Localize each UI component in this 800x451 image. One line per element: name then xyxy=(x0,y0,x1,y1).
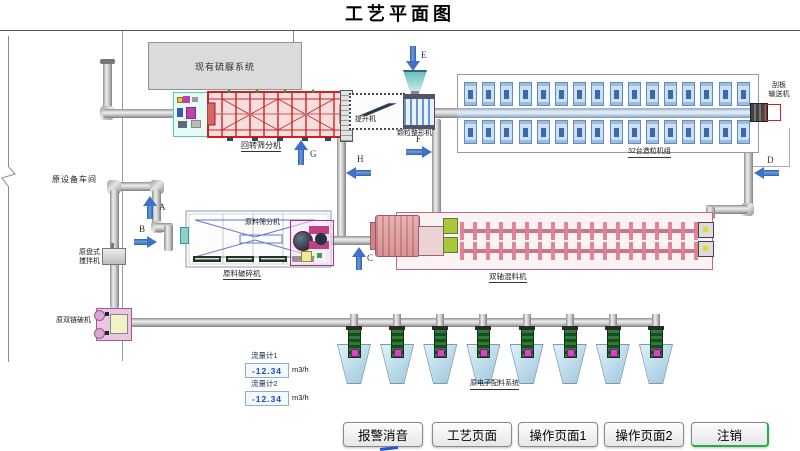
granulator-unit-top xyxy=(464,82,477,106)
granulator-core xyxy=(559,90,564,99)
granulator-unit-top xyxy=(482,82,495,106)
hopper-valve-dot xyxy=(394,349,402,357)
crusher-head-sensor xyxy=(301,251,312,262)
granulator-core xyxy=(541,90,546,99)
granulator-core xyxy=(523,128,528,137)
mixer-shaft-top xyxy=(460,222,698,240)
batching-hopper xyxy=(553,328,587,392)
granulator-core xyxy=(704,128,709,137)
granulator-group-label: 32台造粒机组 xyxy=(628,147,671,158)
granulator-core xyxy=(559,128,564,137)
process-page-button[interactable]: 工艺页面 xyxy=(432,422,512,447)
flow-arrow-g-icon xyxy=(294,140,308,165)
granulator-unit-bottom xyxy=(719,120,732,144)
scraper-conveyor-label-line2: 输送机 xyxy=(760,90,798,99)
operation-page-2-button[interactable]: 操作页面2 xyxy=(604,422,684,447)
batching-hopper xyxy=(423,328,457,392)
granulator-column xyxy=(591,82,604,144)
pipe-segment xyxy=(103,62,112,112)
granulator-unit-bottom xyxy=(646,120,659,144)
granulator-core xyxy=(486,90,491,99)
hopper-valve-dot xyxy=(567,349,575,357)
granulator-column xyxy=(464,82,477,144)
granulator-column xyxy=(482,82,495,144)
granulator-column xyxy=(500,82,513,144)
hopper-valve-dot xyxy=(437,349,445,357)
flow-arrow-f-label: F xyxy=(416,134,421,144)
hopper-cap xyxy=(605,326,621,330)
flow-meter-2-value[interactable]: -12.34 xyxy=(245,391,289,406)
crusher-inlet-stub xyxy=(180,227,189,244)
granulator-column xyxy=(555,82,568,144)
page-title: 工艺平面图 xyxy=(0,0,800,26)
granulator-core xyxy=(632,128,637,137)
pump-part xyxy=(191,120,201,128)
disc-mixer-label-line2: 搅拌机 xyxy=(76,258,100,267)
flow-arrow-d-icon xyxy=(754,167,779,179)
crusher-roller xyxy=(94,328,105,339)
flow-arrow-g-label: G xyxy=(310,149,317,159)
crusher-roller xyxy=(94,310,105,321)
hopper-cap xyxy=(648,326,664,330)
granulator-unit-top xyxy=(664,82,677,106)
flow-meter-2-label: 流量计2 xyxy=(251,379,278,388)
pump-unit-box xyxy=(173,92,209,137)
granulator-core xyxy=(577,128,582,137)
hopper-valve-dot xyxy=(610,349,618,357)
mixer-shaft-bottom xyxy=(460,242,698,260)
pump-motor xyxy=(183,96,190,103)
cursor-artifact xyxy=(380,446,398,451)
mixer-motor xyxy=(375,215,420,257)
existing-system-box: 现有硫脲系统 xyxy=(148,42,302,90)
granulator-unit-bottom xyxy=(464,120,477,144)
left-boundary-line-top xyxy=(8,36,9,166)
flow-arrow-b-label: B xyxy=(139,224,145,234)
raw-screen-label: 原料筛分机 xyxy=(245,218,280,227)
granulator-core xyxy=(723,90,728,99)
batching-hopper xyxy=(380,328,414,392)
flow-arrow-c-label: C xyxy=(367,253,373,263)
hopper-cap xyxy=(475,326,491,330)
rotary-screen-label: 回转筛分机 xyxy=(241,141,281,152)
granulator-unit-bottom xyxy=(482,120,495,144)
chain-crusher-label: 原双链破机 xyxy=(56,316,91,325)
mixer-bearing xyxy=(698,241,714,257)
pipe-segment xyxy=(164,225,173,251)
granulator-core xyxy=(468,128,473,137)
hopper-cap xyxy=(562,326,578,330)
batching-hopper xyxy=(639,328,673,392)
granulator-unit-top xyxy=(646,82,659,106)
granulator-unit-top xyxy=(737,82,750,106)
granulator-unit-bottom xyxy=(500,120,513,144)
granulator-core xyxy=(723,128,728,137)
mixer-gear xyxy=(443,218,458,234)
flow-arrow-a-icon xyxy=(143,196,157,219)
flow-arrow-a-label: A xyxy=(159,202,166,212)
batching-hopper xyxy=(596,328,630,392)
granulator-column xyxy=(719,82,732,144)
granulator-core xyxy=(686,90,691,99)
batching-system-label: 原电子配料系统 xyxy=(470,379,519,390)
alarm-mute-button[interactable]: 报警消音 xyxy=(343,422,423,447)
granulator-core xyxy=(668,90,673,99)
disc-mixer-label: 原盘式 搅拌机 xyxy=(76,249,100,266)
granulator-column xyxy=(573,82,586,144)
granulator-core xyxy=(595,90,600,99)
bearing-dot xyxy=(703,246,708,251)
granulator-column xyxy=(519,82,532,144)
bearing-dot xyxy=(703,227,708,232)
granulator-core xyxy=(577,90,582,99)
granulator-core xyxy=(741,90,746,99)
granulator-column xyxy=(646,82,659,144)
granulator-core xyxy=(486,128,491,137)
pump-part xyxy=(178,121,187,128)
granulator-unit-top xyxy=(591,82,604,106)
crusher-bolt xyxy=(105,312,109,316)
granule-shaper-machine xyxy=(403,94,435,130)
granulator-column xyxy=(537,82,550,144)
flow-meter-2-unit: m3/h xyxy=(292,393,309,402)
hopper-cap xyxy=(519,326,535,330)
raw-crusher-label: 原料破碎机 xyxy=(223,269,261,280)
granulator-core xyxy=(686,128,691,137)
granulator-unit-top xyxy=(555,82,568,106)
pump-motor xyxy=(177,108,183,117)
line-break-symbol xyxy=(1,164,19,188)
crusher-bolt xyxy=(105,331,109,335)
granulator-unit-bottom xyxy=(519,120,532,144)
hopper-cap xyxy=(432,326,448,330)
granulator-unit-top xyxy=(610,82,623,106)
crusher-core xyxy=(110,314,128,334)
granulator-column xyxy=(664,82,677,144)
elevator-label: 提升机 xyxy=(355,115,376,124)
mixer-gearbox xyxy=(418,226,444,256)
granulator-core xyxy=(614,90,619,99)
disc-mixer-box xyxy=(102,248,126,265)
logout-button[interactable]: 注销 xyxy=(691,422,769,447)
pump-motor xyxy=(186,107,196,119)
mixer-gear xyxy=(443,237,458,253)
granulator-core xyxy=(614,128,619,137)
granulator-row xyxy=(464,82,750,144)
hopper-valve-dot xyxy=(351,349,359,357)
granule-shaper-label: 颗粒整形机 xyxy=(397,129,432,138)
disc-mixer-label-line1: 原盘式 xyxy=(76,249,100,258)
hopper-cap xyxy=(346,326,362,330)
granulator-unit-top xyxy=(719,82,732,106)
granulator-column xyxy=(628,82,641,144)
hopper-valve-dot xyxy=(480,349,488,357)
crusher-head-hub xyxy=(315,233,327,245)
flow-arrow-c-icon xyxy=(352,247,366,270)
pipe-segment xyxy=(337,136,346,242)
pipe-segment xyxy=(432,119,441,213)
hopper-valve-dot xyxy=(653,349,661,357)
twin-mixer-label: 双轴混料机 xyxy=(489,272,527,283)
flow-arrow-e-icon xyxy=(406,46,420,71)
granulator-core xyxy=(704,90,709,99)
granulator-unit-top xyxy=(682,82,695,106)
granulator-core xyxy=(632,90,637,99)
rotary-screen-machine xyxy=(207,88,347,142)
mixer-bearing xyxy=(698,222,714,238)
granulator-core xyxy=(650,128,655,137)
granulator-unit-top xyxy=(700,82,713,106)
flow-arrow-e-label: E xyxy=(421,50,427,60)
title-divider xyxy=(0,30,800,31)
flow-arrow-d-label: D xyxy=(767,155,774,165)
crusher-head-frame xyxy=(290,220,334,266)
scraper-conveyor-label: 刮板 输送机 xyxy=(760,81,798,99)
frame-stub-line xyxy=(293,31,294,42)
granulator-unit-bottom xyxy=(537,120,550,144)
granulator-core xyxy=(650,90,655,99)
granulator-unit-bottom xyxy=(700,120,713,144)
hopper-valve-dot xyxy=(524,349,532,357)
pump-part xyxy=(192,97,198,102)
granulator-core xyxy=(595,128,600,137)
chain-crusher-machine xyxy=(96,308,132,341)
existing-system-label: 现有硫脲系统 xyxy=(195,60,255,73)
scraper-conveyor-label-line1: 刮板 xyxy=(760,81,798,90)
granulator-unit-bottom xyxy=(555,120,568,144)
batching-hopper xyxy=(337,328,371,392)
granulator-column xyxy=(737,82,750,144)
pipe-segment xyxy=(103,109,175,118)
granulator-unit-bottom xyxy=(573,120,586,144)
workshop-label: 原设备车间 xyxy=(52,175,97,184)
granulator-unit-top xyxy=(500,82,513,106)
flow-meter-1-label: 流量计1 xyxy=(251,351,278,360)
granulator-unit-bottom xyxy=(682,120,695,144)
granulator-column xyxy=(610,82,623,144)
granulator-column xyxy=(682,82,695,144)
granulator-core xyxy=(523,90,528,99)
granulator-unit-top xyxy=(573,82,586,106)
flow-arrow-f-icon xyxy=(406,146,432,158)
flow-meter-1-value[interactable]: -12.34 xyxy=(245,363,289,378)
granulator-core xyxy=(541,128,546,137)
shaper-top-band xyxy=(404,95,434,99)
granulator-unit-bottom xyxy=(591,120,604,144)
hopper-cap xyxy=(389,326,405,330)
operation-page-1-button[interactable]: 操作页面1 xyxy=(518,422,598,447)
granulator-unit-bottom xyxy=(664,120,677,144)
granulator-unit-top xyxy=(628,82,641,106)
elevator-box: 提升机 xyxy=(349,93,405,130)
flow-arrow-h-icon xyxy=(346,167,371,179)
granulator-unit-bottom xyxy=(737,120,750,144)
flow-arrow-b-icon xyxy=(134,236,157,248)
granulator-unit-bottom xyxy=(610,120,623,144)
granulator-column xyxy=(700,82,713,144)
granulator-core xyxy=(468,90,473,99)
granulator-core xyxy=(668,128,673,137)
flow-meter-1-unit: m3/h xyxy=(292,365,309,374)
pipe-flange xyxy=(100,59,115,64)
granulator-unit-top xyxy=(537,82,550,106)
granulator-core xyxy=(504,90,509,99)
granulator-unit-bottom xyxy=(628,120,641,144)
granulator-core xyxy=(504,128,509,137)
granulator-unit-top xyxy=(519,82,532,106)
flow-arrow-h-label: H xyxy=(357,154,364,164)
left-boundary-line-bottom xyxy=(8,186,9,362)
discharge-highlight-box xyxy=(764,104,781,121)
granulator-core xyxy=(741,128,746,137)
crusher-head-indicator xyxy=(317,253,322,258)
hmi-process-screen: 工艺平面图 现有硫脲系统 xyxy=(0,0,800,451)
